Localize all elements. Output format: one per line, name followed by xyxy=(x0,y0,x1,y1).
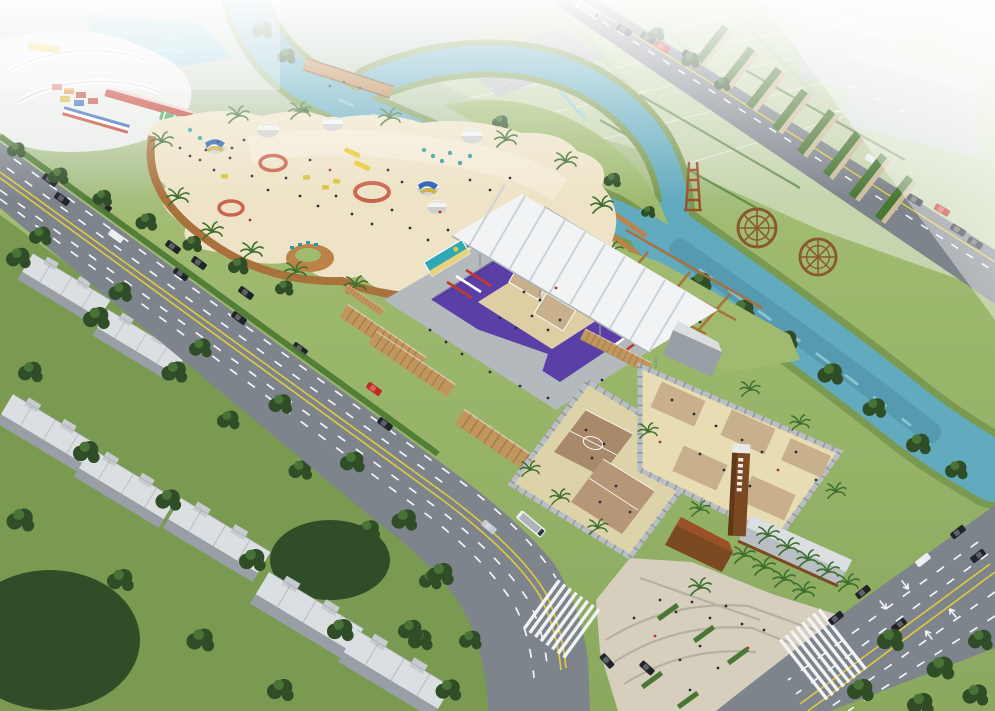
dome-tent xyxy=(427,200,447,214)
aerial-rendering xyxy=(0,0,995,711)
mist-topleft xyxy=(0,0,280,90)
waterwheel-sculpture xyxy=(738,209,776,247)
waterwheel-sculpture xyxy=(800,239,836,275)
